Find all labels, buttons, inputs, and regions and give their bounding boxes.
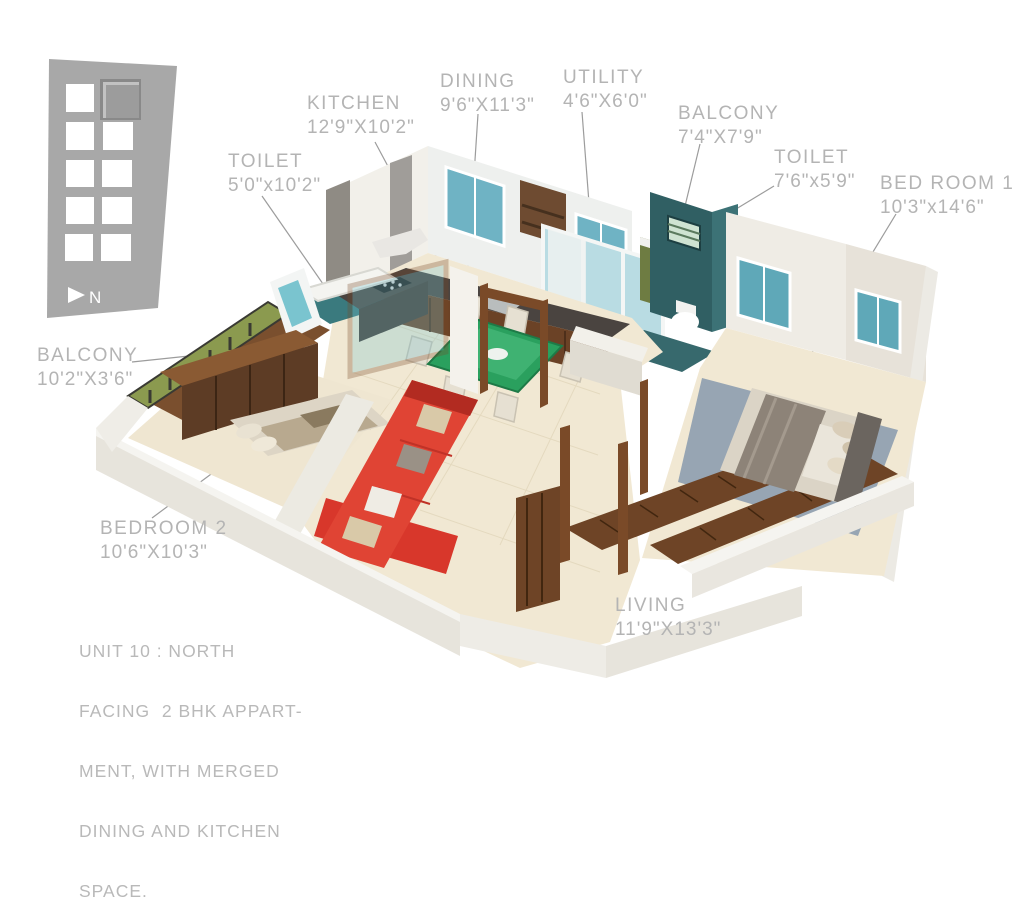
- caption-line: MENT, WITH MERGED: [79, 761, 303, 781]
- room-dims: 4'6"X6'0": [563, 90, 648, 114]
- room-dims: 10'6"X10'3": [100, 541, 228, 565]
- room-label-toilet-1: TOILET5'0"x10'2": [228, 150, 321, 198]
- room-label-balcony-1: BALCONY10'2"X3'6": [37, 344, 138, 392]
- room-dims: 11'9"X13'3": [615, 618, 721, 642]
- room-name: TOILET: [774, 146, 856, 170]
- key-plan-unit-highlight: [100, 79, 141, 120]
- room-label-utility: UTILITY4'6"X6'0": [563, 66, 648, 114]
- room-label-balcony-2: BALCONY7'4"X7'9": [678, 102, 779, 150]
- room-name: UTILITY: [563, 66, 648, 90]
- caption-line: UNIT 10 : NORTH: [79, 641, 303, 661]
- room-name: BEDROOM 2: [100, 517, 228, 541]
- table-centerpiece: [486, 348, 508, 360]
- room-dims: 9'6"X11'3": [440, 94, 535, 118]
- room-label-bedroom-2: BEDROOM 210'6"X10'3": [100, 517, 228, 565]
- room-name: LIVING: [615, 594, 721, 618]
- caption-line: SPACE.: [79, 881, 303, 901]
- room-name: DINING: [440, 70, 535, 94]
- entrance-door: [516, 486, 560, 612]
- room-dims: 7'6"x5'9": [774, 170, 856, 194]
- key-plan: N: [47, 59, 177, 318]
- north-label: N: [89, 288, 102, 307]
- room-dims: 7'4"X7'9": [678, 126, 779, 150]
- room-name: TOILET: [228, 150, 321, 174]
- caption-line: DINING AND KITCHEN: [79, 821, 303, 841]
- room-dims: 5'0"x10'2": [228, 174, 321, 198]
- room-name: KITCHEN: [307, 92, 415, 116]
- room-label-living: LIVING11'9"X13'3": [615, 594, 721, 642]
- unit-caption: UNIT 10 : NORTH FACING 2 BHK APPART- MEN…: [79, 601, 303, 921]
- room-label-dining: DINING9'6"X11'3": [440, 70, 535, 118]
- room-dims: 12'9"X10'2": [307, 116, 415, 140]
- room-dims: 10'3"x14'6": [880, 196, 1014, 220]
- room-label-bed-room-1: BED ROOM 110'3"x14'6": [880, 172, 1014, 220]
- room-label-kitchen: KITCHEN12'9"X10'2": [307, 92, 415, 140]
- floor-plan-canvas: N: [0, 0, 1024, 743]
- caption-line: FACING 2 BHK APPART-: [79, 701, 303, 721]
- room-name: BALCONY: [37, 344, 138, 368]
- room-label-toilet-2: TOILET7'6"x5'9": [774, 146, 856, 194]
- toilet-1-fixtures: [300, 262, 446, 376]
- room-dims: 10'2"X3'6": [37, 368, 138, 392]
- room-name: BED ROOM 1: [880, 172, 1014, 196]
- room-name: BALCONY: [678, 102, 779, 126]
